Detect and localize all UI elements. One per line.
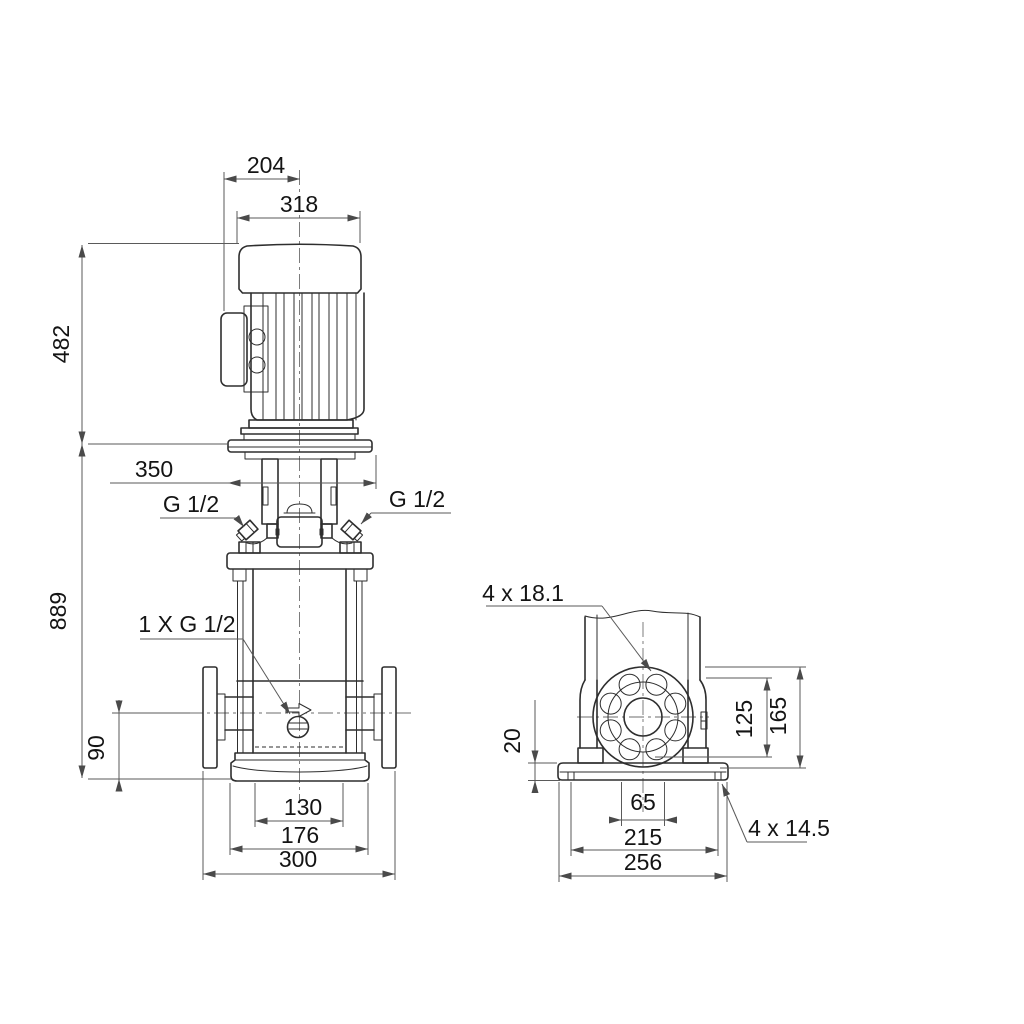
motor	[221, 244, 364, 440]
gauge-plug-right	[341, 520, 364, 542]
motor-stool	[228, 440, 372, 553]
front-dimensions: 204 318 482 350 889 90 130 176 300 G 1/2…	[45, 152, 451, 880]
terminal-box	[221, 306, 268, 392]
motor-fins	[263, 293, 356, 420]
leader-plug-left	[160, 518, 244, 527]
leader-plug-right	[361, 513, 451, 524]
motor-fan-cover	[239, 244, 361, 293]
leader-drain-plug	[140, 639, 290, 714]
dim-label-90: 90	[83, 735, 109, 761]
gauge-plug-left	[235, 520, 258, 542]
dim-label-165: 165	[765, 697, 791, 735]
side-view: 4 x 18.1 125 165 20 65 215 256 4 x 14.5	[482, 580, 830, 882]
leader-flange-holes	[486, 606, 651, 671]
side-sleeve	[585, 610, 700, 680]
dim-label-65: 65	[630, 789, 656, 815]
drain-plug	[288, 717, 309, 738]
baseplate-hole-edges	[568, 772, 721, 780]
pump-head-flange	[227, 553, 373, 569]
dim-label-350: 350	[135, 456, 173, 482]
dim-label-176: 176	[281, 822, 319, 848]
pump-dimensional-drawing: 204 318 482 350 889 90 130 176 300 G 1/2…	[0, 0, 1024, 1024]
dim-label-318: 318	[280, 191, 318, 217]
dim-label-drain: 1 X G 1/2	[138, 611, 235, 637]
flow-arrow-icon	[286, 704, 311, 717]
pump-base	[231, 753, 369, 781]
dim-label-256: 256	[624, 849, 662, 875]
front-view: 204 318 482 350 889 90 130 176 300 G 1/2…	[45, 152, 451, 880]
dim-label-130: 130	[284, 794, 322, 820]
front-extension-lines	[88, 172, 395, 880]
dim-label-300: 300	[279, 846, 317, 872]
dim-label-baseplate-holes: 4 x 14.5	[748, 815, 830, 841]
stool-leg-right	[321, 459, 337, 538]
stool-leg-left	[262, 459, 278, 538]
dim-label-215: 215	[624, 824, 662, 850]
dim-label-20: 20	[499, 728, 525, 754]
dim-label-flange-holes: 4 x 18.1	[482, 580, 564, 606]
dim-label-889: 889	[45, 592, 71, 630]
dim-label-125: 125	[731, 700, 757, 738]
dim-label-482: 482	[48, 325, 74, 363]
break-line	[585, 610, 700, 618]
chamber-stack	[237, 569, 363, 753]
drawing-canvas: 204 318 482 350 889 90 130 176 300 G 1/2…	[0, 0, 1024, 1024]
dim-label-plug-left: G 1/2	[163, 491, 219, 517]
dim-label-204: 204	[247, 152, 286, 178]
motor-stool-flange	[228, 440, 372, 452]
dim-label-plug-right: G 1/2	[389, 486, 445, 512]
pump-head	[227, 553, 373, 581]
